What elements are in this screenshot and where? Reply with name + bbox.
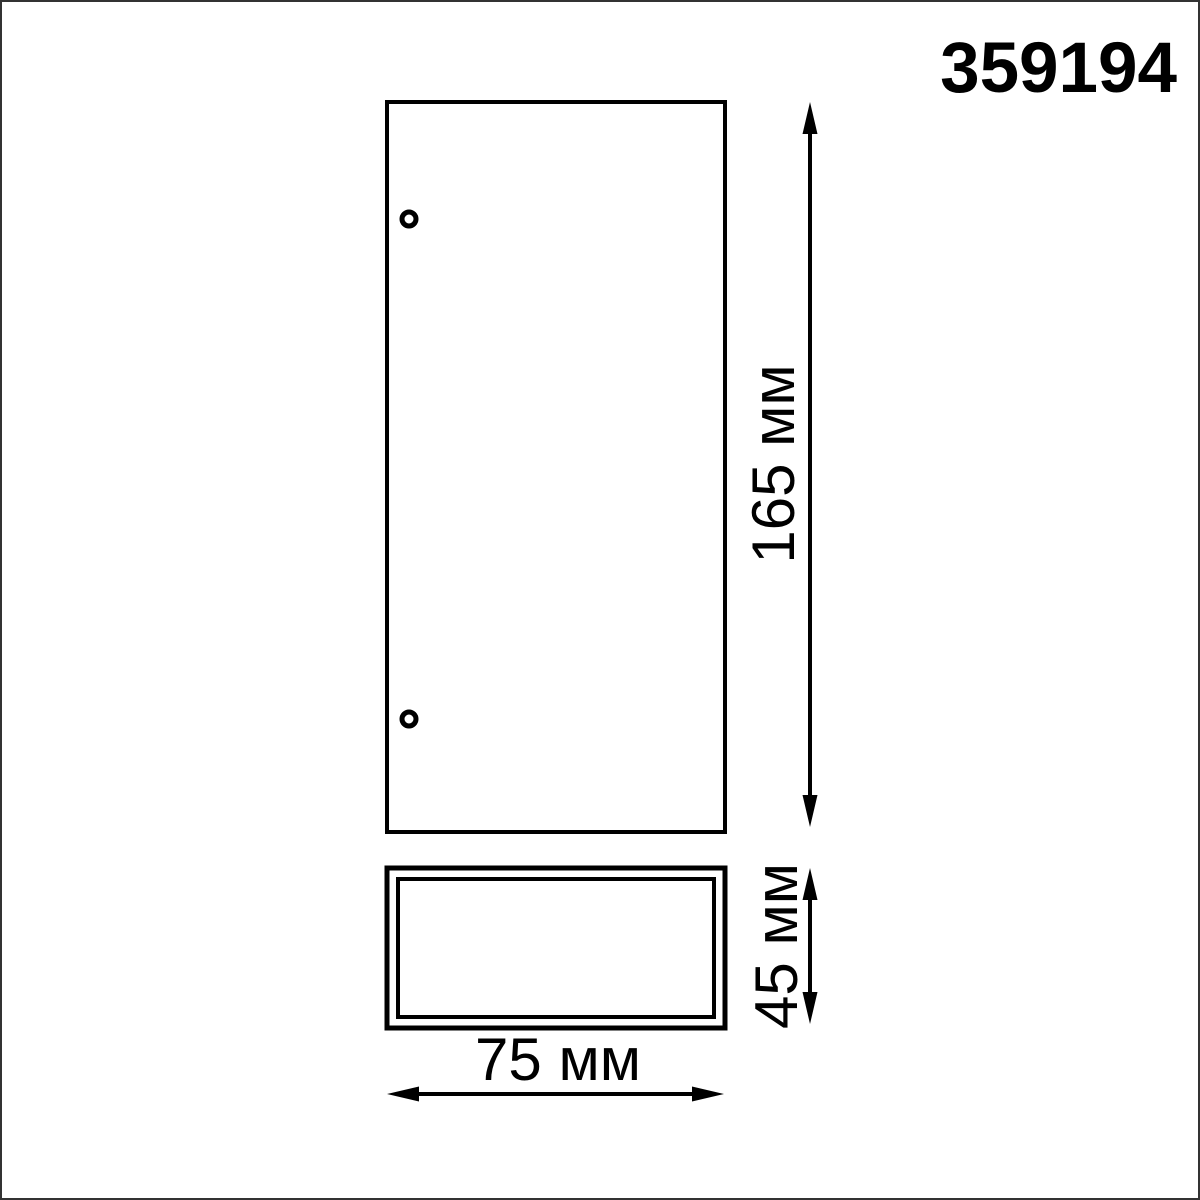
mounting-hole-bottom-icon xyxy=(402,712,416,726)
front-view-outline xyxy=(387,102,725,832)
product-code: 359194 xyxy=(940,29,1177,108)
mounting-hole-top-icon xyxy=(402,212,416,226)
bottom-view-inner-outline xyxy=(398,879,714,1017)
arrow-left-icon xyxy=(387,1087,419,1102)
arrow-up-icon xyxy=(803,102,818,134)
depth-dimension: 45 мм xyxy=(743,863,818,1029)
arrow-down-icon xyxy=(803,795,818,827)
bottom-view xyxy=(387,868,725,1028)
height-dimension-label: 165 мм xyxy=(740,364,807,563)
front-view xyxy=(387,102,725,832)
arrow-right-icon xyxy=(692,1087,724,1102)
width-dimension-label: 75 мм xyxy=(475,1026,641,1093)
technical-drawing: 359194 165 мм 45 мм xyxy=(2,2,1198,1198)
depth-dimension-label: 45 мм xyxy=(743,863,810,1029)
width-dimension: 75 мм xyxy=(387,1026,724,1102)
height-dimension: 165 мм xyxy=(740,102,818,827)
drawing-page: 359194 165 мм 45 мм xyxy=(0,0,1200,1200)
